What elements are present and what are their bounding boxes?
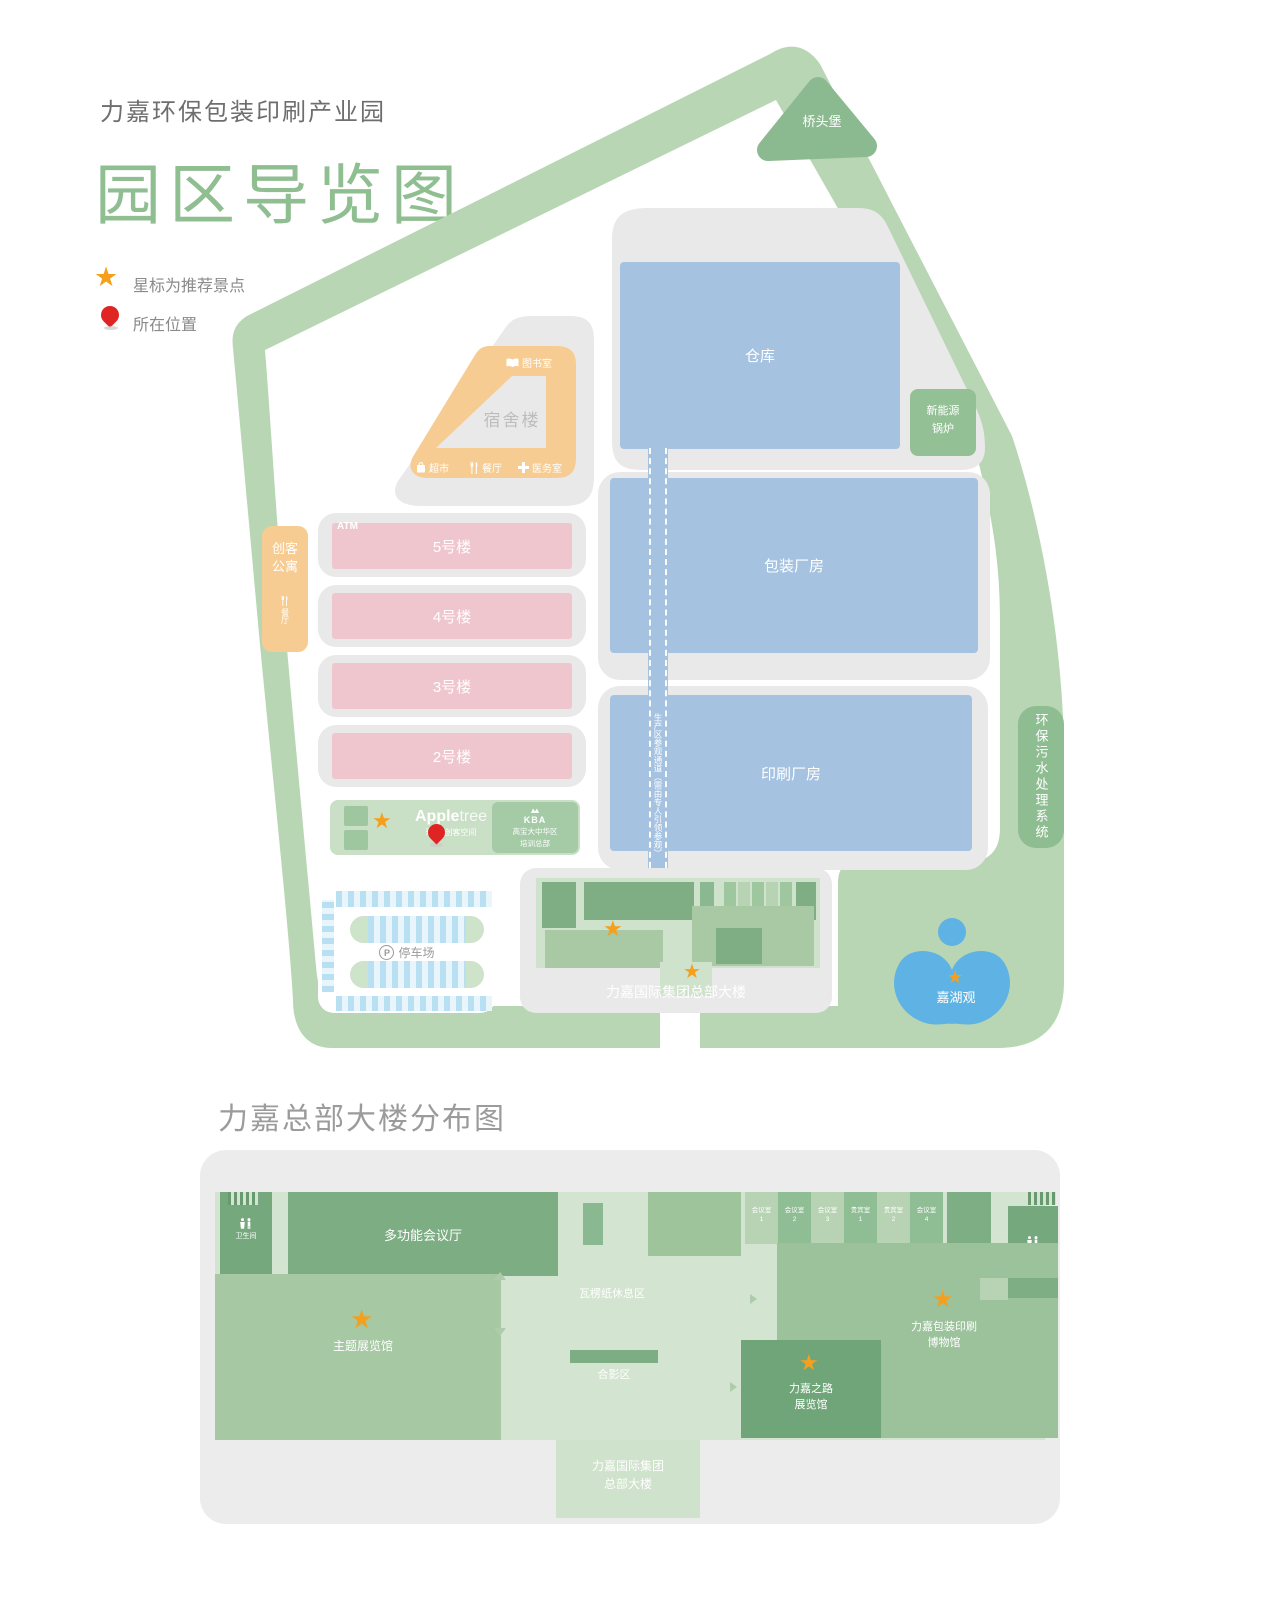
shopping-bag-icon: [416, 462, 426, 473]
theme-hall-label: 主题展览馆: [283, 1338, 443, 1354]
parking-stalls: [336, 996, 492, 1011]
boiler-line1: 新能源: [910, 403, 976, 419]
corridor-arrow-right: [730, 1382, 737, 1392]
bridgehead-label: 桥头堡: [782, 114, 862, 130]
multi-hall: 多功能会议厅: [288, 1192, 558, 1276]
sewage-system: 环保污水处理系统: [1018, 706, 1064, 848]
parking-label: 停车场: [398, 944, 434, 961]
mini-room: [716, 928, 762, 964]
room-num: 2: [793, 1215, 797, 1224]
sewage-label: 环保污水处理系统: [1032, 713, 1051, 841]
appletree-star-icon: [372, 810, 392, 832]
road-hall-star-icon: [799, 1352, 819, 1374]
meeting-room: 会议室4: [910, 1192, 943, 1244]
kba-name: KBA: [524, 815, 547, 825]
market-label: 超市: [429, 460, 449, 475]
corridor-arrow-right: [750, 1294, 757, 1304]
corridor-arrow-up: [494, 1272, 506, 1280]
building3: 3号楼: [332, 663, 572, 709]
dorm-library: 图书室: [506, 355, 552, 370]
hq-star-icon: [603, 918, 623, 940]
room-num: 1: [760, 1215, 764, 1224]
canteen-label: 餐厅: [482, 460, 502, 475]
maker-apartment-line2: 公寓: [262, 558, 308, 576]
warehouse-building: 仓库: [620, 262, 900, 449]
meeting-room: 贵宾室2: [877, 1192, 910, 1244]
dorm-canteen: 餐厅: [470, 460, 502, 475]
photo-area-stage: [570, 1350, 658, 1363]
boiler-building: 新能源 锅炉: [910, 389, 976, 456]
hq-label: 力嘉国际集团总部大楼: [556, 984, 796, 1000]
visitor-corridor: 生产区参观通道（需由专人引领参观）: [648, 448, 668, 878]
building2: 2号楼: [332, 733, 572, 779]
mini-room: [752, 882, 764, 908]
parking-island: [350, 961, 484, 988]
kba-center: KBA 高宝大中华区 培训总部: [492, 802, 578, 853]
appletree-room-block: [344, 806, 368, 826]
corridor-note: 生产区参观通道（需由专人引领参观）: [650, 696, 666, 874]
lake-bubble: [938, 918, 966, 946]
theme-hall-star-icon: [350, 1306, 373, 1332]
rest-area-label: 瓦楞纸休息区: [567, 1286, 657, 1302]
appletree-brand-bold: Apple: [415, 808, 459, 825]
room-num: 4: [925, 1215, 929, 1224]
stairs-stripes: [228, 1192, 258, 1205]
tower-label-line1: 力嘉国际集团: [556, 1458, 700, 1474]
maker-apartment-line1: 创客: [262, 540, 308, 558]
room-name: 贵宾室: [884, 1206, 904, 1215]
tower-tab: 力嘉国际集团 总部大楼: [556, 1440, 700, 1518]
appletree-brand: Appletree: [396, 808, 506, 826]
photo-area-label: 合影区: [580, 1368, 648, 1382]
mini-room: [724, 882, 736, 908]
parking-label-row: P 停车场: [318, 944, 496, 961]
meeting-room: 会议室2: [778, 1192, 811, 1244]
dorm-clinic: 医务室: [518, 460, 562, 475]
theme-hall: 主题展览馆: [215, 1274, 501, 1440]
stairs-stripes: [1028, 1192, 1056, 1205]
parking-stalls: [368, 961, 466, 988]
museum-block: [980, 1278, 1008, 1300]
campus-guide-map: 力嘉环保包装印刷产业园 园区导览图 星标为推荐景点 所在位置 桥头堡 仓库 新能…: [0, 0, 1280, 1599]
mini-room: [738, 882, 750, 908]
maker-canteen-label: 餐厅: [280, 608, 291, 624]
room-name: 会议室: [752, 1206, 772, 1215]
utility-room: [947, 1192, 991, 1244]
kba-line1: 高宝大中华区: [513, 826, 558, 837]
mini-room: [542, 882, 576, 928]
library-label: 图书室: [522, 355, 552, 370]
fork-knife-icon: [281, 596, 289, 606]
meeting-room: 会议室3: [811, 1192, 844, 1244]
room-name: 贵宾室: [851, 1206, 871, 1215]
mini-room: [780, 882, 792, 908]
boiler-line2: 锅炉: [910, 421, 976, 437]
lake-star-icon: [947, 968, 963, 986]
hq-star-icon: [683, 962, 701, 982]
building4: 4号楼: [332, 593, 572, 639]
parking-p-icon: P: [379, 945, 394, 960]
elevator-block: [583, 1203, 603, 1245]
fork-knife-icon: [470, 462, 479, 474]
room-name: 会议室: [785, 1206, 805, 1215]
restroom-left: 卫生间: [220, 1192, 272, 1274]
medical-cross-icon: [518, 462, 529, 473]
museum-star-icon: [932, 1288, 954, 1312]
room-num: 2: [892, 1215, 896, 1224]
room-num: 3: [826, 1215, 830, 1224]
road-hall: 力嘉之路 展览馆: [741, 1340, 881, 1438]
appletree-room-block: [344, 830, 368, 850]
mini-room: [766, 882, 778, 908]
floor-plan-title: 力嘉总部大楼分布图: [218, 1094, 506, 1138]
museum-label-line2: 博物馆: [864, 1336, 1024, 1350]
parking-island: [350, 916, 484, 943]
restroom-icon: [239, 1218, 253, 1229]
atm-label: ATM: [337, 521, 358, 532]
lake-label: 嘉湖观: [916, 990, 996, 1005]
mid-room: [648, 1192, 741, 1256]
clinic-label: 医务室: [532, 460, 562, 475]
hq-zone: 力嘉国际集团总部大楼: [520, 868, 832, 1013]
maker-apartment: 创客 公寓 餐厅: [262, 526, 308, 652]
road-hall-label-line1: 力嘉之路: [751, 1382, 871, 1396]
dorm-label: 宿舍楼: [452, 407, 572, 429]
kba-line2: 培训总部: [520, 838, 550, 849]
tower-label-line2: 总部大楼: [556, 1476, 700, 1492]
museum-block: [1008, 1278, 1058, 1298]
mini-room: [584, 882, 694, 920]
appletree-building: Appletree 环保·创客空间 KBA 高宝大中华区 培训总部: [330, 800, 580, 855]
room-name: 会议室: [917, 1206, 937, 1215]
parking-stalls: [336, 891, 492, 907]
road-hall-label-line2: 展览馆: [751, 1398, 871, 1412]
room-num: 1: [859, 1215, 863, 1224]
meeting-room: 会议室1: [745, 1192, 778, 1244]
restroom-label: 卫生间: [220, 1232, 272, 1242]
meeting-room: 贵宾室1: [844, 1192, 877, 1244]
parking-stalls: [368, 916, 466, 943]
appletree-subtitle: 环保·创客空间: [396, 827, 506, 838]
book-icon: [506, 358, 519, 368]
maker-canteen: 餐厅: [262, 596, 308, 624]
dorm-market: 超市: [416, 460, 449, 475]
room-name: 会议室: [818, 1206, 838, 1215]
building5: 5号楼: [332, 523, 572, 569]
appletree-brand-light: tree: [459, 808, 487, 825]
museum-label-line1: 力嘉包装印刷: [864, 1320, 1024, 1334]
kba-logo-icon: [529, 807, 541, 814]
parking-lot: P 停车场: [318, 868, 496, 1013]
corridor-arrow-down: [494, 1328, 506, 1336]
